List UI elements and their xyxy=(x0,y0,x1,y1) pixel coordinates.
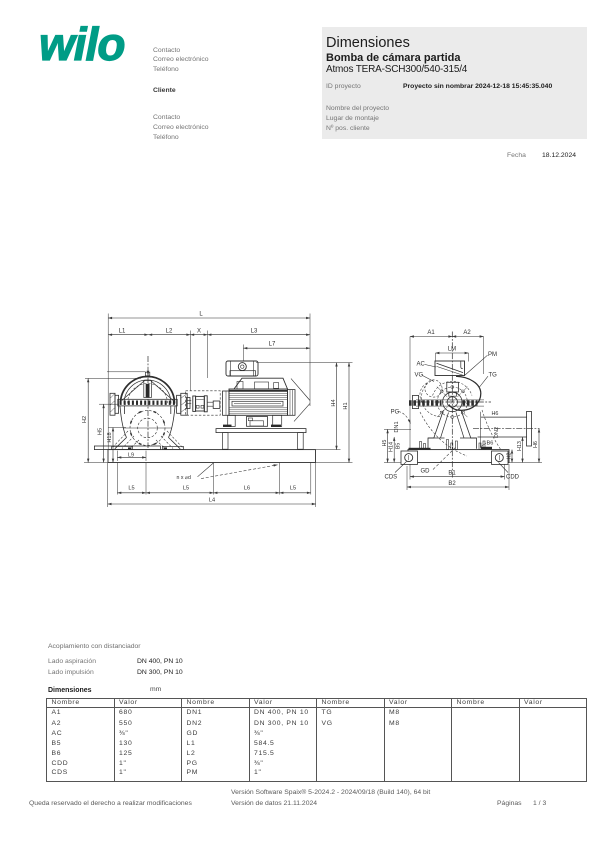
svg-text:LM: LM xyxy=(448,347,456,353)
svg-text:L7: L7 xyxy=(269,342,276,348)
svg-text:L1: L1 xyxy=(119,328,126,334)
svg-text:H4: H4 xyxy=(331,399,337,406)
svg-text:H14: H14 xyxy=(389,442,395,452)
svg-text:B6: B6 xyxy=(487,441,494,447)
svg-text:H2: H2 xyxy=(506,453,512,460)
svg-text:L: L xyxy=(199,312,203,318)
svg-text:L4: L4 xyxy=(209,498,215,504)
svg-text:L5: L5 xyxy=(183,486,189,492)
svg-text:L9: L9 xyxy=(128,452,134,458)
svg-text:H18: H18 xyxy=(107,432,113,442)
svg-text:PM: PM xyxy=(488,352,497,358)
svg-text:CDD: CDD xyxy=(506,474,520,480)
svg-text:L5: L5 xyxy=(290,486,296,492)
svg-text:L6: L6 xyxy=(244,486,250,492)
svg-text:GD: GD xyxy=(421,468,431,474)
svg-text:H1: H1 xyxy=(343,402,349,409)
svg-text:L2: L2 xyxy=(166,328,173,334)
svg-text:AC: AC xyxy=(417,362,426,368)
svg-text:A2: A2 xyxy=(463,330,471,336)
svg-text:B1: B1 xyxy=(448,470,456,476)
svg-text:H6: H6 xyxy=(533,441,539,448)
svg-text:B2: B2 xyxy=(448,481,456,487)
svg-text:A1: A1 xyxy=(427,330,435,336)
svg-text:n x ⌀d: n x ⌀d xyxy=(177,475,191,481)
svg-text:TG: TG xyxy=(489,373,498,379)
svg-text:H5: H5 xyxy=(382,440,388,447)
svg-text:PG: PG xyxy=(391,409,400,415)
svg-text:CDS: CDS xyxy=(385,474,398,480)
svg-text:L5: L5 xyxy=(128,486,134,492)
svg-text:L3: L3 xyxy=(251,328,258,334)
svg-text:DN1: DN1 xyxy=(394,421,400,432)
svg-text:B5: B5 xyxy=(396,443,402,450)
svg-text:X: X xyxy=(197,328,201,334)
svg-text:H2: H2 xyxy=(82,416,88,423)
svg-text:H13: H13 xyxy=(517,441,523,451)
svg-text:H5: H5 xyxy=(97,428,103,435)
svg-text:H6: H6 xyxy=(492,411,499,417)
svg-text:DN2: DN2 xyxy=(494,427,500,438)
svg-text:VG: VG xyxy=(415,373,424,379)
